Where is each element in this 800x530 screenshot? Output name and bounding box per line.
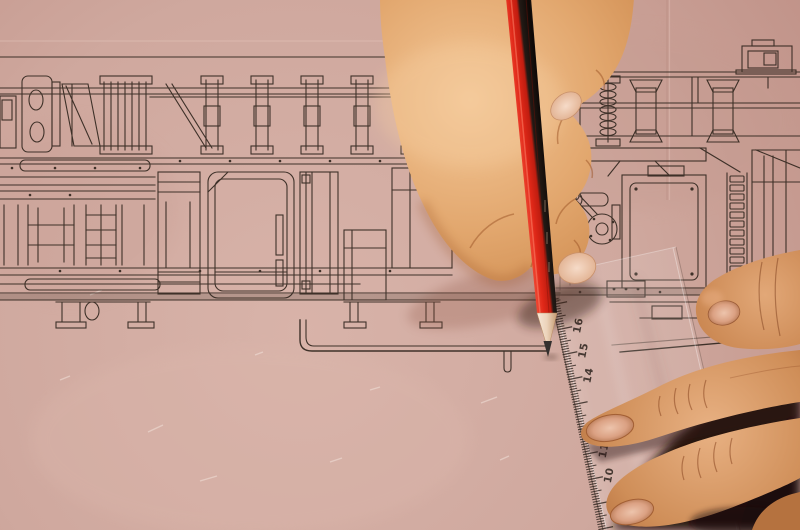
pencil-tip-shadow: [544, 355, 558, 360]
thumb-highlight: [701, 290, 723, 306]
paper-mottle: [30, 345, 470, 530]
scene: 1615141110: [0, 0, 800, 530]
drafting-photo: 1615141110: [0, 0, 800, 530]
